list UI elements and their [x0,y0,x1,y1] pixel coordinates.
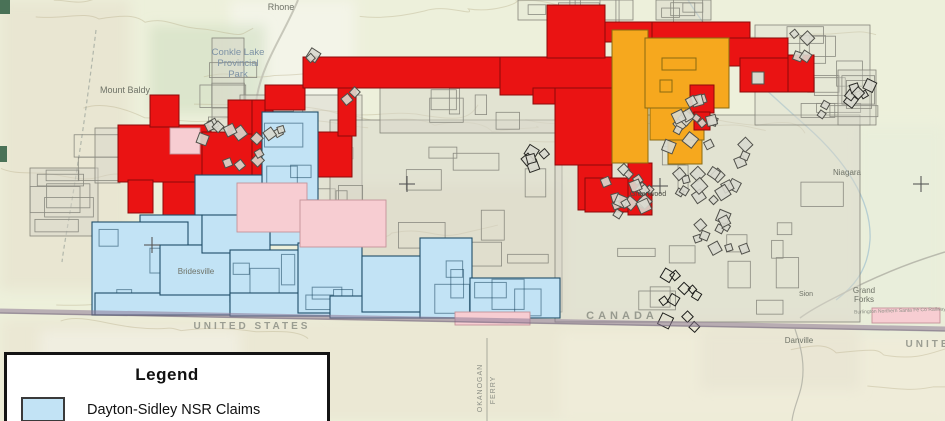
map-viewport: Rhone Conkle Lake Provincial Park Mount … [0,0,945,421]
legend-panel: Legend Dayton-Sidley NSR Claims [4,352,330,421]
legend-item-dayton-sidley: Dayton-Sidley NSR Claims [21,397,260,421]
legend-title: Legend [7,365,327,385]
legend-item-label: Dayton-Sidley NSR Claims [87,402,260,418]
legend-swatch-blue-claims [21,397,65,421]
